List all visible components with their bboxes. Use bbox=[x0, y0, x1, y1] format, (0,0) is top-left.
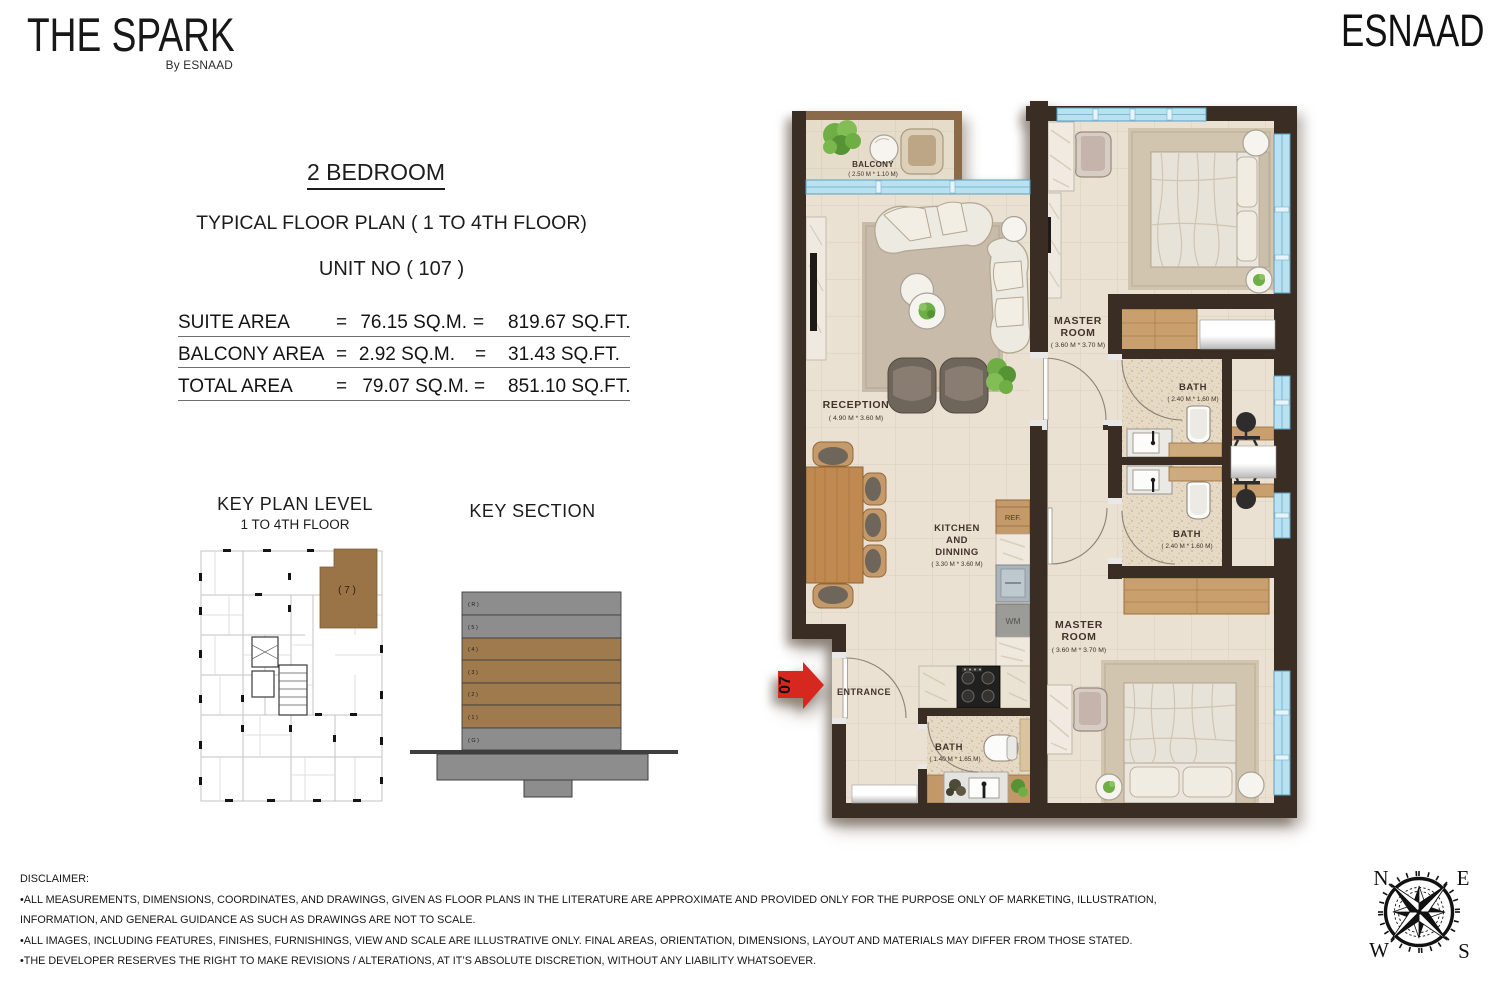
svg-text:( 4 ): ( 4 ) bbox=[468, 647, 478, 653]
svg-text:RECEPTION: RECEPTION bbox=[823, 399, 890, 411]
svg-text:( 1 ): ( 1 ) bbox=[468, 715, 478, 721]
svg-text:( R ): ( R ) bbox=[468, 602, 479, 608]
svg-text:KITCHEN: KITCHEN bbox=[934, 523, 980, 534]
svg-text:ROOM: ROOM bbox=[1061, 631, 1096, 643]
svg-text:( 5 ): ( 5 ) bbox=[468, 625, 478, 631]
svg-text:BATH: BATH bbox=[1179, 382, 1207, 393]
svg-text:E: E bbox=[1457, 866, 1470, 890]
svg-text:BATH: BATH bbox=[1173, 529, 1201, 540]
svg-text:WM: WM bbox=[1005, 616, 1020, 626]
svg-text:AND: AND bbox=[946, 535, 968, 546]
svg-text:07: 07 bbox=[777, 676, 794, 694]
svg-text:( 4.90 M * 3.60 M): ( 4.90 M * 3.60 M) bbox=[829, 415, 883, 422]
svg-text:( 2.40 M * 1.60 M): ( 2.40 M * 1.60 M) bbox=[1167, 396, 1218, 403]
svg-text:( 3 ): ( 3 ) bbox=[468, 670, 478, 676]
svg-text:( 7 ): ( 7 ) bbox=[338, 585, 356, 596]
svg-text:( 2.40 M * 1.60 M): ( 2.40 M * 1.60 M) bbox=[1161, 543, 1212, 550]
svg-text:MASTER: MASTER bbox=[1055, 619, 1103, 631]
svg-text:( 2 ): ( 2 ) bbox=[468, 692, 478, 698]
svg-text:( 3.60 M * 3.70 M): ( 3.60 M * 3.70 M) bbox=[1052, 647, 1106, 654]
svg-text:MASTER: MASTER bbox=[1054, 315, 1102, 327]
svg-text:ROOM: ROOM bbox=[1060, 327, 1095, 339]
svg-text:( 1.40 M * 1.65 M): ( 1.40 M * 1.65 M) bbox=[929, 756, 980, 763]
svg-text:DINNING: DINNING bbox=[935, 547, 979, 558]
svg-text:BATH: BATH bbox=[935, 742, 963, 753]
svg-text:( G ): ( G ) bbox=[468, 738, 479, 744]
svg-text:W: W bbox=[1369, 938, 1389, 962]
svg-text:( 3.30 M * 3.60 M): ( 3.30 M * 3.60 M) bbox=[931, 561, 982, 568]
svg-text:S: S bbox=[1458, 939, 1470, 963]
svg-text:( 3.60 M * 3.70 M): ( 3.60 M * 3.70 M) bbox=[1051, 342, 1105, 349]
svg-text:ENTRANCE: ENTRANCE bbox=[837, 687, 891, 697]
svg-text:BALCONY: BALCONY bbox=[852, 160, 894, 169]
svg-text:( 2.50 M * 1.10 M): ( 2.50 M * 1.10 M) bbox=[848, 171, 898, 178]
svg-text:N: N bbox=[1373, 866, 1388, 890]
svg-text:REF.: REF. bbox=[1005, 513, 1021, 522]
